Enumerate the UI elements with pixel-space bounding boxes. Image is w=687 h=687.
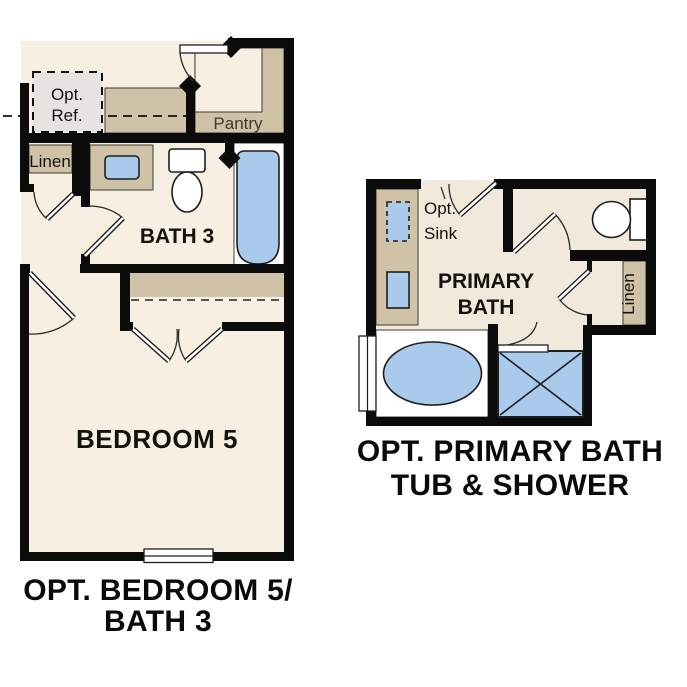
linen-label: Linen: [619, 273, 638, 315]
caption-bedroom5-line2: BATH 3: [104, 605, 212, 638]
bath3-sink: [105, 156, 139, 179]
opt-ref-label-line1: Opt.: [51, 85, 83, 104]
shower-door-leaf: [498, 345, 548, 352]
caption-primary-bath-line1: OPT. PRIMARY BATH: [357, 435, 663, 468]
opt-ref-label-line2: Ref.: [51, 106, 82, 125]
bedroom5-label: BEDROOM 5: [76, 424, 238, 454]
primary-bath-label-line1: PRIMARY: [438, 270, 534, 293]
plan-primary-bath: Opt. Sink PRIMARY BATH Linen: [359, 179, 656, 426]
wall-segment: [570, 250, 646, 261]
pantry-label: Pantry: [213, 114, 263, 133]
wall-segment: [583, 330, 592, 426]
wall-segment: [72, 143, 81, 196]
toilet-bowl-primary: [593, 202, 631, 238]
closet-shelf: [130, 273, 284, 297]
wall-segment: [488, 324, 498, 417]
pantry-floor: [195, 48, 262, 112]
primary-bath-label-line2: BATH: [458, 296, 515, 319]
wall-segment: [503, 188, 513, 252]
floorplan-drawing: Opt. Ref.: [0, 0, 687, 687]
caption-bedroom5-line1: OPT. BEDROOM 5/: [23, 574, 293, 607]
wall-segment: [212, 552, 294, 561]
bath3-label: BATH 3: [140, 225, 214, 248]
wall-segment: [494, 179, 656, 189]
toilet-tank-primary: [630, 199, 648, 240]
wall-segment: [646, 179, 656, 335]
wall-segment: [366, 417, 591, 426]
wall-segment: [20, 552, 145, 561]
optional-sink: [387, 202, 409, 241]
bedroom-window: [144, 549, 213, 563]
wall-segment: [583, 325, 656, 335]
wall-segment: [80, 264, 284, 273]
bathtub-fixture: [237, 151, 279, 264]
kitchen-counter: [105, 88, 187, 133]
garden-tub-fixture: [384, 342, 482, 405]
plan-bedroom5-bath3: Opt. Ref.: [3, 36, 294, 563]
opt-sink-label-line2: Sink: [424, 224, 458, 243]
wall-segment: [284, 38, 294, 561]
wall-segment: [587, 314, 592, 325]
floorplan-page: Opt. Ref.: [0, 0, 687, 687]
opt-sink-label-line1: Opt.: [424, 199, 456, 218]
toilet-tank-bath3: [169, 149, 205, 172]
wall-segment: [120, 264, 130, 331]
wall-segment: [81, 143, 90, 207]
wall-segment: [366, 179, 376, 340]
wall-segment: [20, 184, 34, 192]
door-leaf: [180, 45, 228, 53]
wall-segment: [20, 264, 29, 561]
caption-primary-bath-line2: TUB & SHOWER: [391, 469, 630, 502]
wall-segment: [20, 133, 294, 143]
wall-segment: [120, 322, 133, 331]
primary-sink: [387, 272, 409, 308]
linen-label: Linen: [29, 152, 71, 171]
wall-segment: [222, 322, 284, 331]
tub-window: [359, 336, 376, 411]
toilet-bowl-bath3: [172, 172, 202, 212]
